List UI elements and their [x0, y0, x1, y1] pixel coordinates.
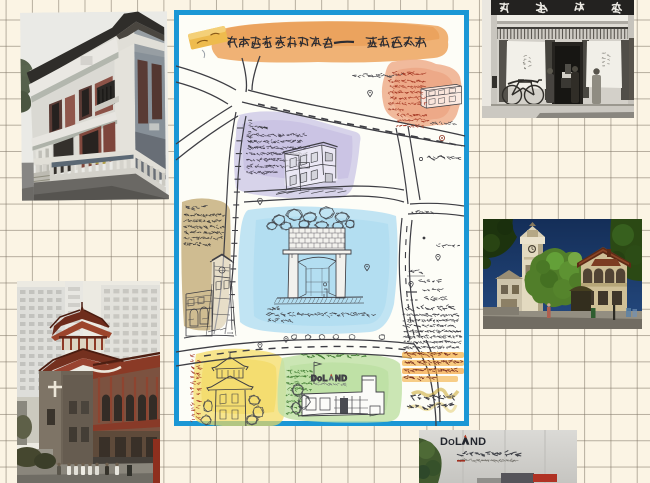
svg-text:DOL: DOL [440, 436, 462, 448]
svg-text:ND: ND [470, 436, 486, 448]
svg-text:ND: ND [335, 374, 348, 383]
